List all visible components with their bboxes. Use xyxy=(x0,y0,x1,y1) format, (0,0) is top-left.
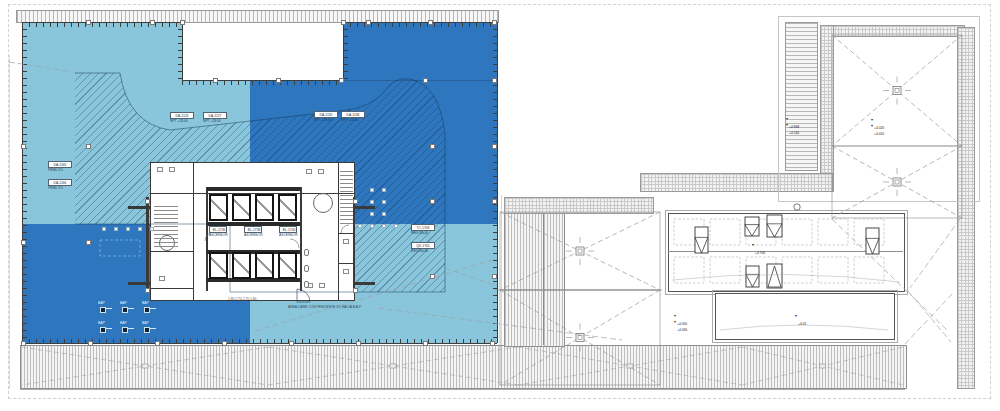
side-louver-strip xyxy=(504,212,565,347)
grid-line xyxy=(343,80,497,81)
elevator-cell xyxy=(232,252,251,279)
fixture xyxy=(306,169,312,174)
edge-ticks xyxy=(182,80,343,85)
elevator-cell xyxy=(278,252,297,279)
toilet-fixture xyxy=(304,281,309,288)
fixture xyxy=(157,167,163,172)
facade-notch xyxy=(182,22,343,80)
annex-hatch-step-lower xyxy=(504,197,654,214)
bottom-band-baseline xyxy=(20,389,905,390)
edge-ticks xyxy=(178,22,183,80)
side-louver-divider xyxy=(543,212,544,345)
fixture xyxy=(159,276,165,281)
elevator-cell xyxy=(255,194,274,221)
elevator-cell xyxy=(232,194,251,221)
core-wall xyxy=(193,163,194,300)
toilet-fixture xyxy=(304,249,309,256)
elevator-cell xyxy=(209,194,228,221)
lower-plenum xyxy=(715,293,895,340)
mech-room-midline xyxy=(668,251,903,252)
core-wall xyxy=(338,233,354,234)
fill-layer xyxy=(0,0,1000,411)
edge-ticks xyxy=(22,22,182,27)
core-wall xyxy=(300,187,302,291)
shear-wall-fin xyxy=(146,197,149,289)
elevator-cell xyxy=(209,252,228,279)
core-wall xyxy=(151,251,193,252)
service-core xyxy=(150,162,355,301)
roof-plan-drawing: DA-1126NPT +28.00DA-1127NPT +28.00DA-113… xyxy=(0,0,1000,411)
stair-treads xyxy=(340,171,353,226)
stair-treads xyxy=(154,206,178,248)
core-wall xyxy=(206,187,208,291)
shear-wall-fin xyxy=(353,197,355,289)
core-slab-band xyxy=(207,222,300,226)
core-wall xyxy=(338,263,354,264)
elevator-cell xyxy=(278,194,297,221)
annex-outline xyxy=(778,16,980,202)
core-wall xyxy=(151,288,193,289)
shear-wall-fin xyxy=(353,282,375,285)
edge-ticks xyxy=(493,22,498,343)
fixture xyxy=(343,239,349,244)
core-slab-band xyxy=(207,187,300,191)
edge-ticks xyxy=(343,22,348,80)
toilet-fixture xyxy=(304,265,309,272)
stair-drum xyxy=(313,193,333,213)
fixture xyxy=(169,167,175,172)
bottom-louver-band xyxy=(20,345,907,389)
edge-ticks xyxy=(22,22,27,343)
shear-wall-fin xyxy=(353,206,375,209)
annex-edge-line xyxy=(501,195,502,345)
elevator-cell xyxy=(255,252,274,279)
core-wall xyxy=(338,163,339,300)
mech-room xyxy=(668,213,905,292)
fixture xyxy=(319,283,325,288)
fixture xyxy=(343,269,349,274)
fixture xyxy=(318,169,324,174)
edge-ticks xyxy=(343,22,497,27)
sheet-edge-line xyxy=(9,55,10,389)
edge-ticks xyxy=(22,339,497,344)
